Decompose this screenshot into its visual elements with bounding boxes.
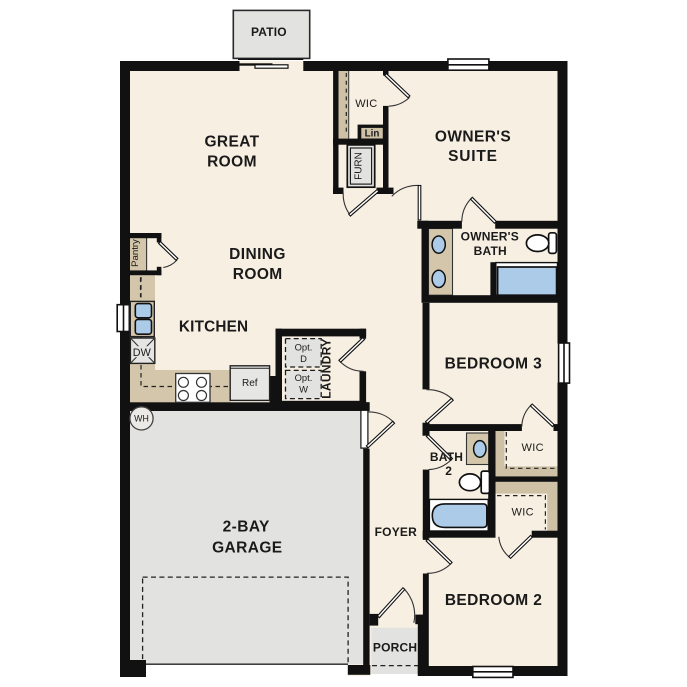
svg-text:OWNER'S: OWNER'S — [461, 230, 519, 244]
svg-text:KITCHEN: KITCHEN — [179, 319, 248, 336]
svg-text:FOYER: FOYER — [375, 525, 417, 539]
svg-text:PATIO: PATIO — [251, 25, 287, 39]
svg-text:ROOM: ROOM — [207, 154, 257, 171]
svg-text:DW: DW — [133, 347, 152, 359]
svg-text:BATH: BATH — [474, 244, 507, 258]
svg-text:W: W — [299, 383, 308, 394]
svg-text:Opt.: Opt. — [295, 372, 313, 383]
svg-text:OWNER'S: OWNER'S — [435, 128, 511, 145]
svg-text:Pantry: Pantry — [130, 239, 141, 267]
svg-text:2: 2 — [445, 464, 452, 478]
svg-text:WIC: WIC — [522, 442, 544, 454]
svg-text:GREAT: GREAT — [204, 133, 259, 150]
svg-text:SUITE: SUITE — [448, 148, 498, 165]
svg-text:Ref: Ref — [242, 378, 258, 389]
svg-text:2-BAY: 2-BAY — [223, 519, 270, 536]
svg-text:BEDROOM 3: BEDROOM 3 — [445, 355, 542, 372]
svg-text:WIC: WIC — [512, 507, 534, 519]
svg-text:DINING: DINING — [229, 246, 286, 263]
svg-text:LAUNDRY: LAUNDRY — [320, 338, 334, 398]
svg-text:ROOM: ROOM — [233, 266, 283, 283]
svg-text:Opt.: Opt. — [295, 342, 313, 353]
svg-text:Lin: Lin — [365, 129, 380, 140]
svg-text:WH: WH — [134, 414, 149, 424]
svg-text:BEDROOM 2: BEDROOM 2 — [445, 592, 542, 609]
svg-text:GARAGE: GARAGE — [212, 540, 282, 557]
svg-text:D: D — [300, 353, 307, 364]
svg-text:FURN: FURN — [353, 152, 364, 180]
svg-text:BATH: BATH — [430, 450, 463, 464]
svg-text:PORCH: PORCH — [373, 640, 417, 654]
svg-text:WIC: WIC — [355, 98, 377, 110]
